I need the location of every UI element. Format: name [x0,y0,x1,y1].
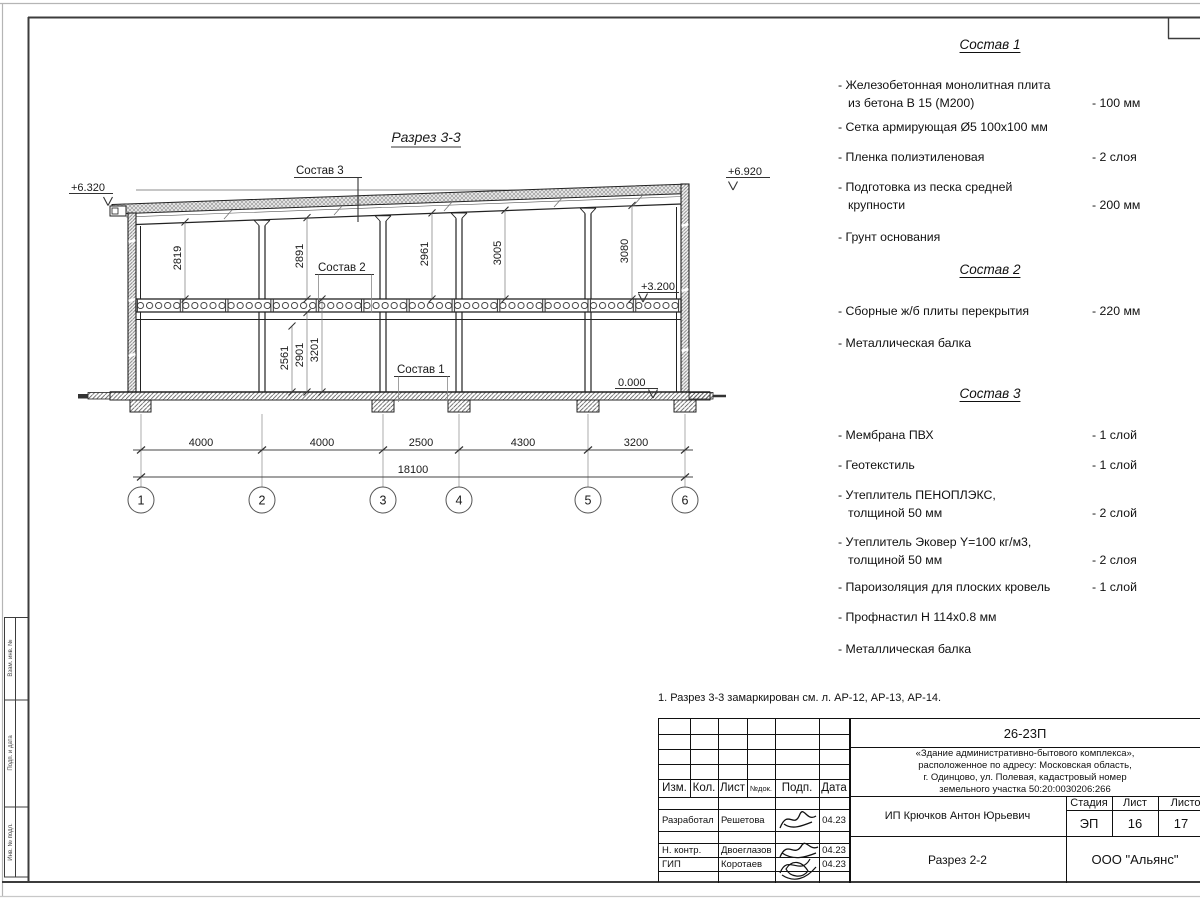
axis-number: 4 [456,494,463,508]
dim-label: 3201 [309,338,321,362]
title-block: Изм. Кол. Лист №док. Подп. Дата Разработ… [658,718,1200,882]
list-item: - Геотекстиль- 1 слой [838,456,1144,474]
axis-number: 6 [682,494,689,508]
elevation-label: +3.200 [641,281,675,293]
material-name: - Пароизоляция для плоских кровель [838,578,1092,596]
signature [772,847,824,881]
margin-label: Взам. инв. № [7,639,14,676]
list-item: - Сетка армирующая Ø5 100x100 мм [838,118,1144,136]
material-name: - Железобетонная монолитная плита из бет… [838,76,1092,112]
tb-col-list: Лист [718,779,747,797]
material-name: - Мембрана ПВХ [838,426,1092,444]
tb-sheets-header: Листов [1158,796,1200,810]
span-dim: 4000 [189,437,213,449]
material-value: - 2 слоя [1092,551,1144,569]
dim-label: 3005 [492,241,504,265]
comp1-label: Состав 1 [397,364,445,376]
tb-role: Разработал [662,809,717,831]
material-name: - Грунт основания [838,228,1092,246]
tb-col-kol: Кол. [690,779,718,797]
tb-sheet-value: 16 [1112,810,1158,836]
tb-role: ГИП [662,857,717,871]
axis-number: 1 [138,494,145,508]
material-value: - 2 слоя [1092,148,1144,166]
tb-name: Двоеглазов [721,843,775,857]
tb-doc-number: 26-23П [849,719,1200,747]
material-value: - 220 мм [1092,302,1144,320]
tb-col-izm: Изм. [659,779,690,797]
columns-lower [141,313,677,393]
tb-sheet-header: Лист [1112,796,1158,810]
elevation-label: 0.000 [618,377,646,389]
dim-label: 2901 [294,343,306,367]
list-item: - Пароизоляция для плоских кровель- 1 сл… [838,578,1144,596]
list-item: - Металлическая балка [838,640,1144,658]
elevation-label: +6.320 [71,182,105,194]
sheet-note: 1. Разрез 3-3 замаркирован см. л. АР-12,… [658,692,941,704]
material-name: - Утеплитель ПЕНОПЛЭКС, толщиной 50 мм [838,486,1092,522]
list-item: - Сборные ж/б плиты перекрытия- 220 мм [838,302,1144,320]
floor-slab [136,299,681,320]
tb-sheet-name: Разрез 2-2 [849,836,1066,883]
axis-number: 3 [380,494,387,508]
margin-label: Подп. и дата [8,735,14,771]
material-name: - Металлическая балка [838,640,1092,658]
bottom-dims: 4000 4000 2500 4300 3200 18100 [133,414,693,487]
list-item: - Утеплитель Эковер Y=100 кг/м3, толщино… [838,533,1144,569]
foundation-pads [130,400,696,412]
list-item: - Металлическая балка [838,334,1144,352]
material-name: - Подготовка из песка средней крупности [838,178,1092,214]
dims-floor2: 2819 2891 2961 3005 3080 [172,202,636,303]
span-dim: 4300 [511,437,535,449]
exterior-walls [128,184,689,392]
axis-bubbles: 1 2 3 4 5 6 [128,487,698,513]
comp3-label: Состав 3 [296,165,344,177]
material-name: - Профнастил Н 114x0.8 мм [838,608,1092,626]
span-dim: 4000 [310,437,334,449]
dim-label: 2819 [172,246,184,270]
comp1-heading: Состав 1 [832,35,1148,55]
dim-label: 2891 [294,244,306,268]
tb-project-name: «Здание административно-бытового комплек… [849,747,1200,796]
material-value: - 200 мм [1092,196,1144,214]
tb-stage-header: Стадия [1066,796,1112,810]
list-item: - Железобетонная монолитная плита из бет… [838,76,1144,112]
material-name: - Сетка армирующая Ø5 100x100 мм [838,118,1092,136]
axis-number: 5 [585,494,592,508]
tb-name: Решетова [721,809,775,831]
span-dim: 2500 [409,437,433,449]
list-item: - Грунт основания [838,228,1144,246]
dim-label: 3080 [619,239,631,263]
tb-col-ndok: №док. [747,779,775,797]
tb-stage-value: ЭП [1066,810,1112,836]
tb-col-data: Дата [819,779,849,797]
list-item: - Утеплитель ПЕНОПЛЭКС, толщиной 50 мм- … [838,486,1144,522]
ground-slab [78,392,726,400]
material-name: - Металлическая балка [838,334,1092,352]
material-name: - Пленка полиэтиленовая [838,148,1092,166]
tb-date: 04.23 [819,809,849,831]
list-item: - Пленка полиэтиленовая- 2 слоя [838,148,1144,166]
list-item: - Профнастил Н 114x0.8 мм [838,608,1144,626]
material-value: - 100 мм [1092,94,1144,112]
comp3-heading: Состав 3 [832,384,1148,404]
material-name: - Геотекстиль [838,456,1092,474]
elevation-label: +6.920 [728,166,762,178]
tb-name: Коротаев [721,857,775,871]
tb-client: ИП Крючков Антон Юрьевич [849,796,1066,836]
comp2-heading: Состав 2 [832,260,1148,280]
material-value: - 2 слой [1092,504,1144,522]
dim-label: 2561 [279,346,291,370]
drawing-title: Разрез 3-3 [391,129,461,145]
axis-number: 2 [259,494,266,508]
list-item: - Подготовка из песка средней крупности-… [838,178,1144,214]
drawing-sheet: Взам. инв. № Подп. и дата Инв. № подл. Р… [0,0,1200,900]
list-item: - Мембрана ПВХ- 1 слой [838,426,1144,444]
signature [776,804,820,834]
material-value: - 1 слой [1092,578,1144,596]
span-dim: 3200 [624,437,648,449]
tb-company: ООО "Альянс" [1066,836,1200,883]
comp2-label: Состав 2 [318,262,366,274]
total-dim: 18100 [398,464,429,476]
tb-col-podp: Подп. [775,779,819,797]
material-name: - Сборные ж/б плиты перекрытия [838,302,1092,320]
margin-label: Инв. № подл. [7,823,14,861]
material-value: - 1 слой [1092,426,1144,444]
dim-label: 2961 [419,242,431,266]
tb-role: Н. контр. [662,843,717,857]
material-name: - Утеплитель Эковер Y=100 кг/м3, толщино… [838,533,1092,569]
tb-sheets-value: 17 [1158,810,1200,836]
material-value: - 1 слой [1092,456,1144,474]
